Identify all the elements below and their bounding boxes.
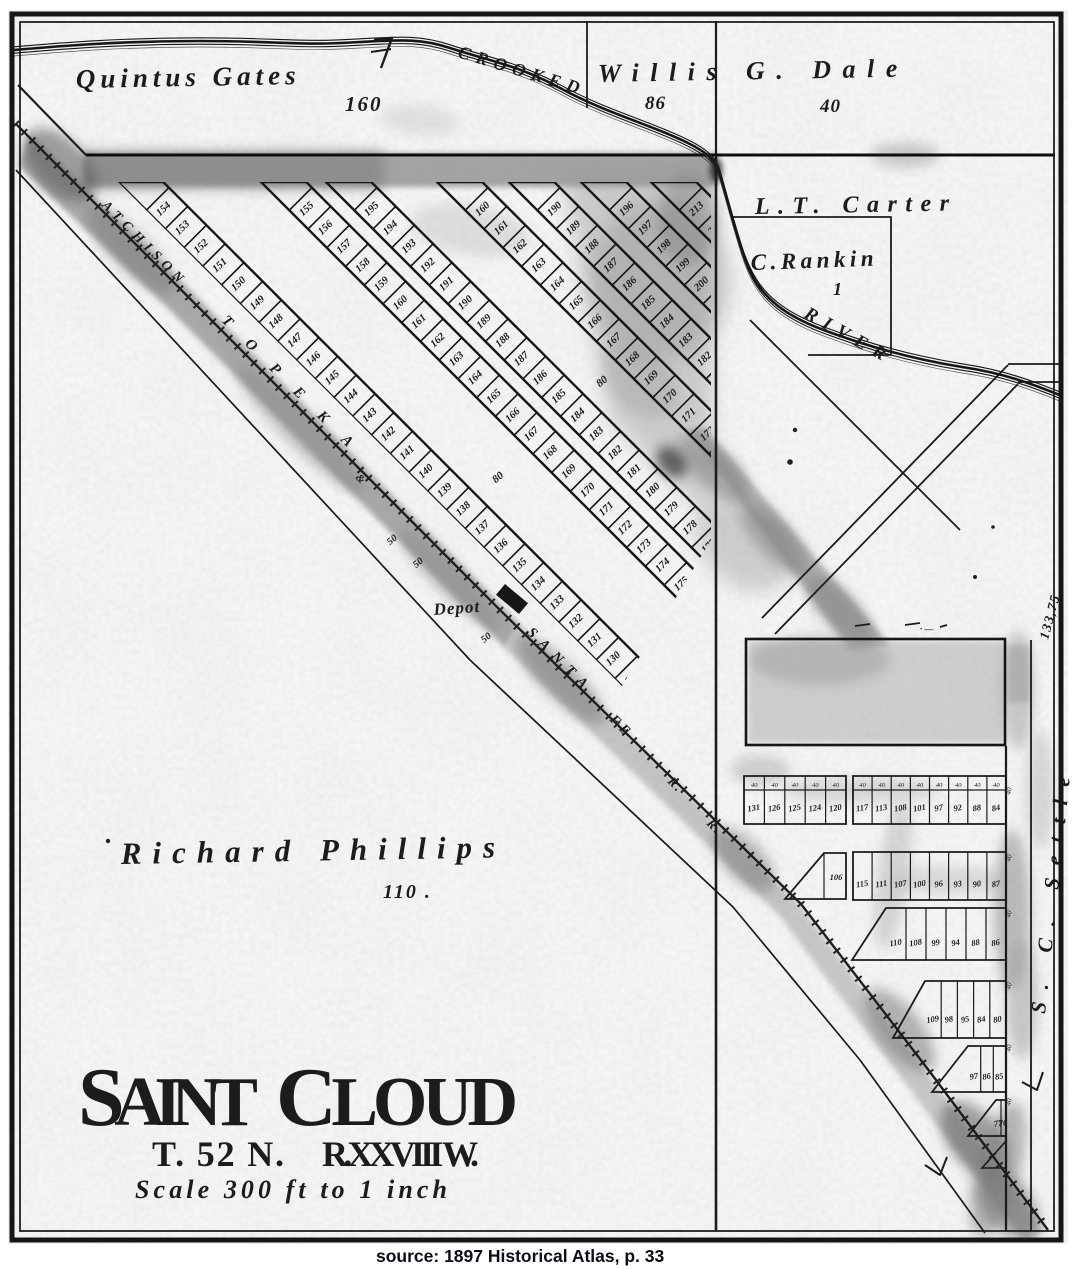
svg-text:T. 52 N.: T. 52 N. xyxy=(152,1134,284,1174)
svg-text:40: 40 xyxy=(993,782,1000,789)
svg-text:84: 84 xyxy=(991,802,1001,813)
svg-text:Scale 300 ft to 1 inch: Scale 300 ft to 1 inch xyxy=(135,1175,447,1204)
svg-text:40: 40 xyxy=(898,782,905,789)
svg-text:SAINT: SAINT xyxy=(78,1051,258,1144)
svg-text:111: 111 xyxy=(874,878,887,890)
svg-text:40: 40 xyxy=(917,782,924,789)
svg-text:Richard Phillips: Richard Phillips xyxy=(120,829,507,871)
svg-text:L.T. Carter: L.T. Carter xyxy=(754,190,958,220)
svg-text:84: 84 xyxy=(976,1013,986,1024)
svg-text:106: 106 xyxy=(830,872,844,882)
svg-text:40: 40 xyxy=(792,782,799,789)
svg-text:Willis G. Dale: Willis G. Dale xyxy=(598,54,909,88)
svg-text:160: 160 xyxy=(345,92,383,116)
svg-text:Quintus Gates: Quintus Gates xyxy=(76,60,301,94)
svg-text:C.Rankin: C.Rankin xyxy=(750,246,878,275)
svg-text:86: 86 xyxy=(645,93,666,114)
svg-text:R.XXVIII W.: R.XXVIII W. xyxy=(322,1134,478,1174)
svg-text:· —: · — xyxy=(920,624,934,634)
svg-text:94: 94 xyxy=(950,937,960,948)
svg-text:40: 40 xyxy=(812,782,819,789)
svg-text:40: 40 xyxy=(974,782,981,789)
svg-text:CLOUD: CLOUD xyxy=(276,1051,518,1144)
svg-text:110 .: 110 . xyxy=(383,881,432,903)
svg-text:1: 1 xyxy=(833,279,842,299)
svg-text:source: 1897 Historical Atlas,: source: 1897 Historical Atlas, p. 33 xyxy=(376,1246,664,1266)
svg-text:40: 40 xyxy=(751,782,758,789)
svg-text:40: 40 xyxy=(819,96,841,117)
svg-text:40: 40 xyxy=(771,782,778,789)
svg-text:40: 40 xyxy=(833,782,840,789)
svg-text:Depot: Depot xyxy=(432,597,481,619)
svg-text:40: 40 xyxy=(936,782,943,789)
svg-text:40: 40 xyxy=(955,782,962,789)
svg-text:40: 40 xyxy=(859,782,866,789)
svg-text:40: 40 xyxy=(878,782,885,789)
